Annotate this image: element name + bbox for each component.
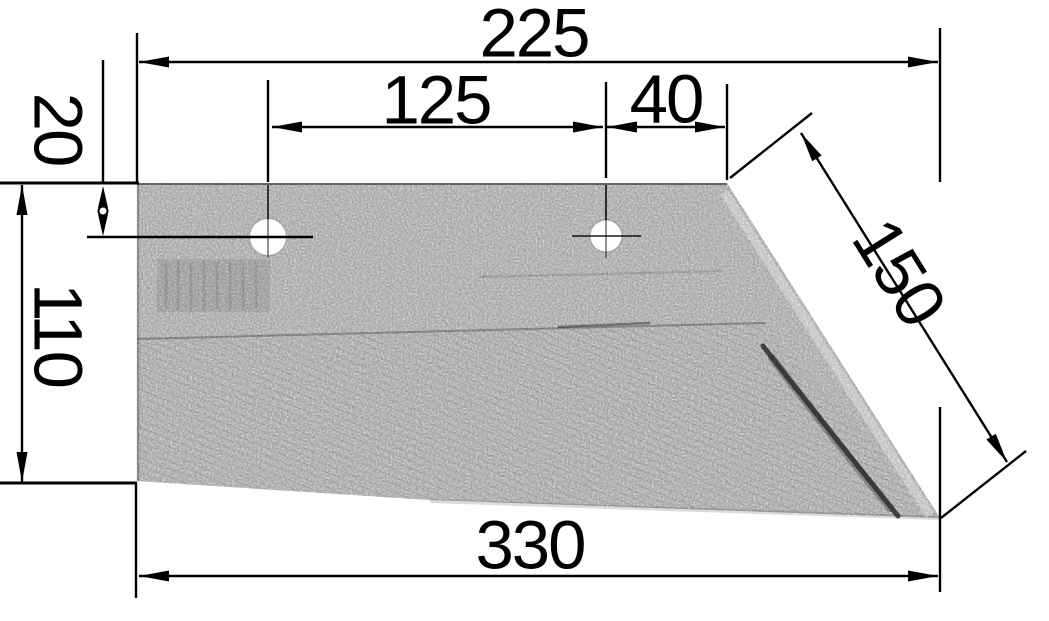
forge-stamp-patch <box>157 259 270 312</box>
arrow-125-right <box>573 122 603 133</box>
arrow-330-left <box>139 571 169 582</box>
dim-label-overall-top-width: 225 <box>479 0 588 68</box>
dim-label-hole-spacing: 125 <box>381 66 490 135</box>
dim-label-edge-to-hole-offset: 20 <box>24 93 93 166</box>
dim-label-hole-to-corner: 40 <box>630 65 703 134</box>
arrow-150-top <box>801 133 822 161</box>
arrow-150-bottom <box>986 434 1007 462</box>
arrow-225-left <box>139 57 169 68</box>
arrow-20-top <box>98 186 108 208</box>
arrow-125-left <box>272 122 302 133</box>
arrow-110-top <box>17 185 28 215</box>
arrow-110-bottom <box>17 452 28 482</box>
dim-label-overall-bottom-width: 330 <box>475 511 584 580</box>
plate-photo <box>137 183 940 518</box>
arrow-330-right <box>908 571 938 582</box>
dim-20-midpoint-marker <box>99 207 108 216</box>
technical-drawing-canvas: 225 125 40 20 110 150 330 <box>0 0 1049 621</box>
arrow-225-right <box>908 57 938 68</box>
ext-line-150-upper <box>730 113 812 178</box>
dim-label-left-edge-height: 110 <box>24 283 93 387</box>
ext-line-150-lower <box>941 451 1026 518</box>
arrow-20-bottom <box>98 214 108 236</box>
